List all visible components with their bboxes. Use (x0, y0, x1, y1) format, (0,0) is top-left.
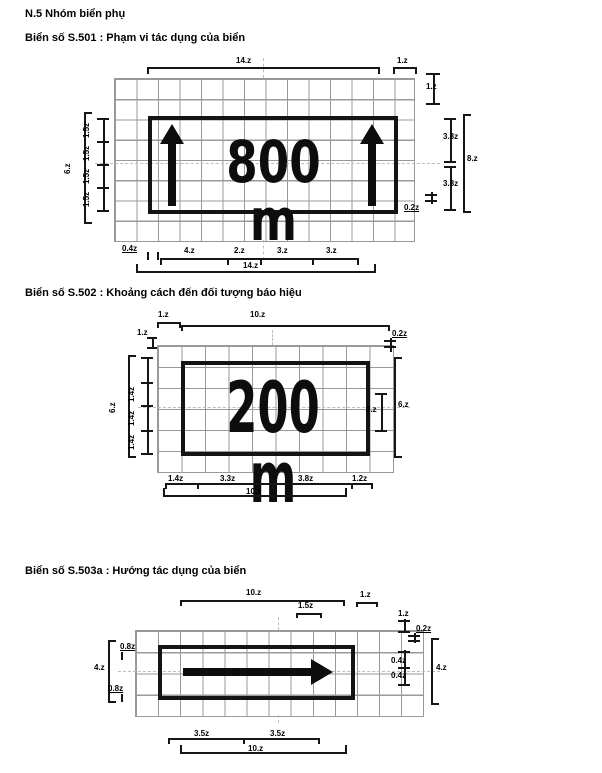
dim-label: 3.3z (220, 474, 235, 483)
dim-line (393, 67, 417, 69)
right-arrow-icon (183, 659, 333, 685)
dim-tick (136, 264, 138, 272)
dim-tick (375, 393, 387, 395)
dim-tick (398, 667, 410, 669)
dim-tick (243, 738, 245, 744)
dim-tick (121, 694, 123, 702)
dim-tick (141, 382, 153, 384)
up-arrow-icon (160, 124, 184, 206)
dim-label: 3.z (277, 246, 288, 255)
dim-line (381, 393, 383, 432)
dim-label: 10.z (246, 588, 261, 597)
dim-tick (345, 488, 347, 496)
dim-tick (141, 453, 153, 455)
dim-label: 8.z (467, 154, 478, 163)
dim-label: 1.z (398, 609, 409, 618)
dim-label: 1.5z (82, 169, 92, 184)
dim-tick (356, 602, 358, 607)
dim-label: 14.z (243, 261, 258, 270)
dim-tick (425, 194, 437, 196)
dim-tick (444, 166, 456, 168)
dim-tick (374, 264, 376, 272)
dim-tick (147, 252, 149, 260)
dim-tick (425, 200, 437, 202)
centerline (278, 715, 279, 723)
dim-tick (108, 640, 116, 642)
dim-tick (351, 483, 353, 489)
dim-tick (180, 745, 182, 753)
dim-label: 1.z (426, 82, 437, 91)
dim-label: 2.z (366, 405, 377, 414)
dim-label: 0.2z (416, 624, 431, 633)
dim-tick (141, 357, 153, 359)
dim-tick (388, 325, 390, 331)
dim-label: 3.8z (443, 179, 458, 188)
dim-tick (128, 456, 136, 458)
dim-tick (181, 325, 183, 331)
dim-label: 0.8z (120, 642, 135, 651)
dim-tick (197, 483, 199, 489)
dim-tick (394, 456, 402, 458)
dim-label: 3.8z (443, 132, 458, 141)
dim-tick (84, 222, 92, 224)
dim-tick (415, 67, 417, 74)
dim-line (450, 166, 452, 210)
dim-tick (444, 161, 456, 163)
dim-label: 10.z (248, 744, 263, 753)
dim-label: 1.4z (127, 435, 137, 450)
dim-label: 3.5z (270, 729, 285, 738)
dim-label: 1.5z (82, 146, 92, 161)
dim-tick (398, 620, 410, 622)
dim-tick (97, 210, 109, 212)
dim-tick (180, 600, 182, 606)
dim-tick (431, 703, 439, 705)
dim-line (181, 325, 390, 327)
dim-label: 4.z (94, 663, 105, 672)
dim-label: 14.z (236, 56, 251, 65)
dim-tick (343, 600, 345, 606)
dim-tick (431, 638, 439, 640)
dim-tick (97, 187, 109, 189)
dim-label: 1.5z (298, 601, 313, 610)
diagram2-heading: Biển số S.502 : Khoảng cách đến đối tượn… (25, 287, 302, 299)
dim-label: 0.4z (122, 244, 137, 253)
dim-label: 1.5z (82, 123, 92, 138)
dim-line (394, 357, 396, 458)
dim-label: 0.4z (391, 671, 406, 680)
dim-label: 1.z (397, 56, 408, 65)
diagram3-heading: Biển số S.503a : Hướng tác dụng của biển (25, 565, 246, 577)
dim-tick (121, 652, 123, 660)
dim-line (180, 752, 347, 754)
dim-tick (157, 322, 159, 328)
dim-label: 0.4z (391, 656, 406, 665)
dim-label: 1.4z (127, 411, 137, 426)
dim-tick (384, 346, 396, 348)
dim-label: 3.z (326, 246, 337, 255)
dim-label: 1.z (137, 328, 148, 337)
dim-tick (357, 258, 359, 265)
dim-tick (393, 67, 395, 74)
dim-tick (463, 211, 471, 213)
dim-tick (108, 701, 116, 703)
dim-tick (463, 114, 471, 116)
dim-tick (444, 209, 456, 211)
dim-tick (312, 258, 314, 265)
diagram1-heading: Biển số S.501 : Phạm vi tác dụng của biể… (25, 32, 245, 44)
dim-tick (378, 67, 380, 74)
dim-line (157, 322, 181, 324)
dim-tick (384, 340, 396, 342)
dim-tick (165, 483, 167, 489)
dim-label: 0.2z (404, 203, 419, 212)
dim-label: 1.5z (82, 192, 92, 207)
dim-tick (147, 67, 149, 74)
dim-tick (345, 745, 347, 753)
dim-label: 10.z (246, 487, 261, 496)
dim-tick (147, 347, 157, 349)
dim-tick (141, 405, 153, 407)
dim-line (180, 600, 345, 602)
dim-tick (426, 73, 440, 75)
dim-label: 10.z (250, 310, 265, 319)
dim-tick (260, 258, 262, 265)
dim-line (108, 640, 110, 703)
dim-tick (141, 430, 153, 432)
dim-tick (371, 483, 373, 489)
dim-label: 0.2z (392, 329, 407, 338)
dim-tick (84, 112, 92, 114)
sign-value-text: 800 m (210, 133, 337, 249)
dim-line (147, 67, 380, 69)
dim-tick (160, 258, 162, 265)
dim-tick (375, 430, 387, 432)
dim-line (136, 271, 376, 273)
centerline (272, 330, 273, 345)
dim-tick (426, 103, 440, 105)
dim-tick (398, 684, 410, 686)
dim-line (296, 613, 322, 615)
dim-label: 1.4z (127, 387, 137, 402)
dim-label: 6.z (108, 402, 118, 413)
dim-tick (128, 355, 136, 357)
dim-label: 0.8z (108, 684, 123, 693)
dim-label: 1.z (360, 590, 371, 599)
section-title: N.5 Nhóm biển phụ (25, 8, 125, 20)
sign-value-text: 200 m (220, 373, 326, 513)
dim-tick (408, 640, 420, 642)
dim-tick (398, 651, 410, 653)
dim-line (431, 638, 433, 705)
dim-tick (147, 337, 157, 339)
dim-tick (163, 488, 165, 496)
dim-tick (318, 738, 320, 744)
dim-label: 3.8z (298, 474, 313, 483)
dim-label: 6.z (398, 400, 409, 409)
dim-label: 4.z (436, 663, 447, 672)
dim-tick (320, 613, 322, 618)
dim-label: 1.4z (168, 474, 183, 483)
dim-tick (97, 164, 109, 166)
dim-tick (296, 613, 298, 618)
dim-tick (408, 635, 420, 637)
dim-tick (394, 357, 402, 359)
dim-tick (97, 141, 109, 143)
dim-label: 4.z (184, 246, 195, 255)
dim-label: 6.z (63, 163, 73, 174)
dim-tick (376, 602, 378, 607)
dim-tick (227, 258, 229, 265)
dim-label: 2.z (234, 246, 245, 255)
dim-tick (157, 252, 159, 260)
centerline (278, 617, 279, 630)
dim-label: 3.5z (194, 729, 209, 738)
dim-line (356, 602, 378, 604)
dim-line (463, 114, 465, 213)
up-arrow-icon (360, 124, 384, 206)
dim-tick (398, 631, 410, 633)
dim-label: 1.z (158, 310, 169, 319)
dim-tick (444, 118, 456, 120)
dim-tick (168, 738, 170, 744)
dim-label: 1.2z (352, 474, 367, 483)
dim-tick (272, 483, 274, 489)
dim-tick (97, 118, 109, 120)
document-page: N.5 Nhóm biển phụ Biển số S.501 : Phạm v… (0, 0, 602, 773)
